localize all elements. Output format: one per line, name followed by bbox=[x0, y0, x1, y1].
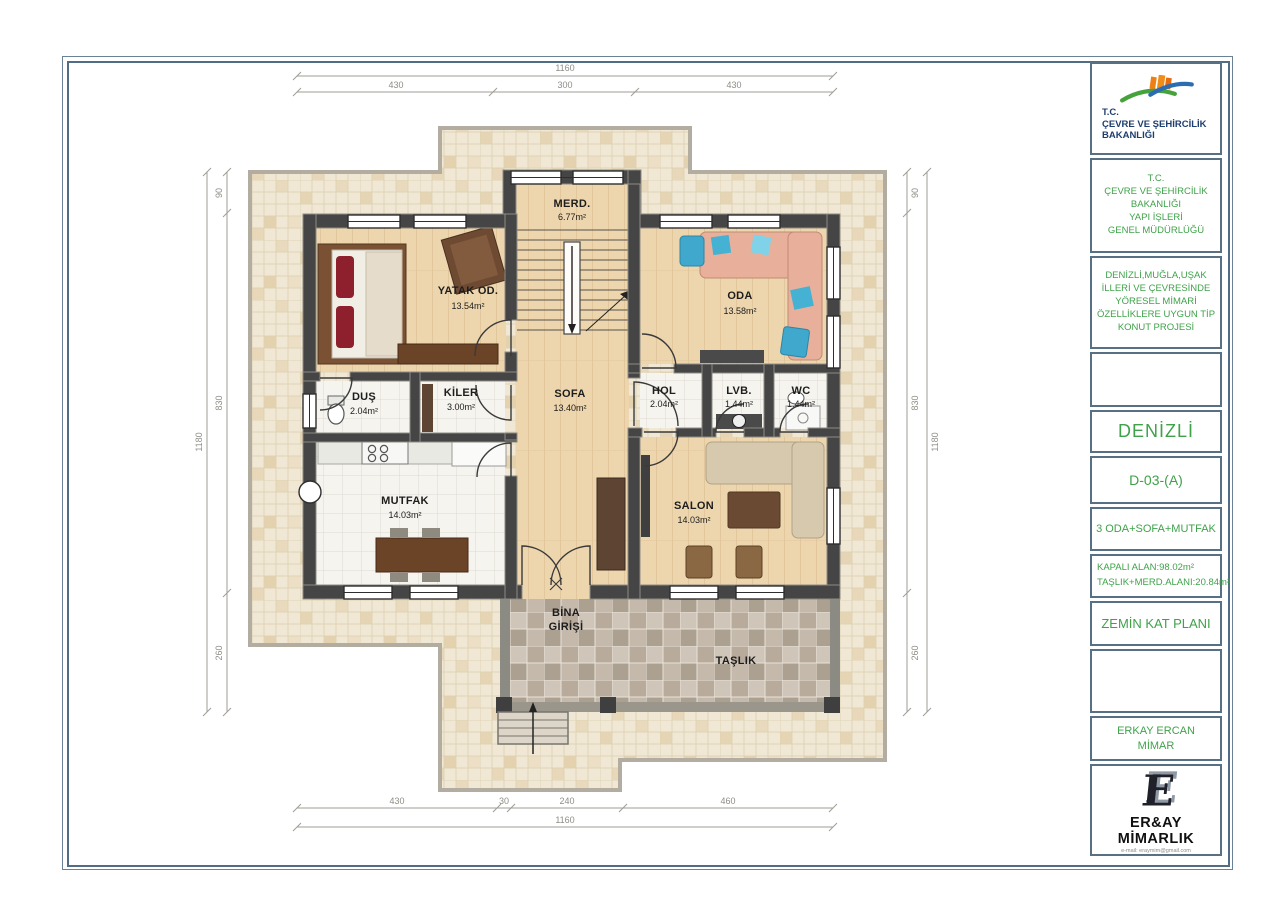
project-line3: YÖRESEL MİMARİ bbox=[1115, 296, 1196, 309]
room-area-oda: 13.58m² bbox=[723, 306, 756, 316]
ministry-line4: YAPI İŞLERİ bbox=[1129, 212, 1183, 225]
room-label-hol: HOL bbox=[652, 385, 676, 397]
title-block-firm: E E ER&AY MİMARLIK e-mail: eraymim@gmail… bbox=[1090, 764, 1222, 856]
room-area-salon: 14.03m² bbox=[677, 515, 710, 525]
room-label-merd: MERD. bbox=[554, 198, 591, 210]
room-label-yatak: YATAK OD. bbox=[438, 285, 499, 297]
title-block-empty-2 bbox=[1090, 649, 1222, 713]
title-block-project: DENİZLİ,MUĞLA,UŞAK İLLERİ VE ÇEVRESİNDE … bbox=[1090, 256, 1222, 349]
room-area-merd: 6.77m² bbox=[558, 212, 586, 222]
title-block-program: 3 ODA+SOFA+MUTFAK bbox=[1090, 507, 1222, 551]
ministry-logo-line2: ÇEVRE VE ŞEHİRCİLİK bbox=[1102, 119, 1220, 130]
firm-name: ER&AY MİMARLIK bbox=[1092, 815, 1220, 847]
sofa-hall-cabinet-icon bbox=[597, 478, 625, 570]
title-block-areas: KAPALI ALAN:98.02m² TAŞLIK+MERD.ALANI:20… bbox=[1090, 554, 1222, 598]
project-line2: İLLERİ VE ÇEVRESİNDE bbox=[1102, 283, 1211, 296]
title-block-ministry: T.C. ÇEVRE VE ŞEHİRCİLİK BAKANLIĞI YAPI … bbox=[1090, 158, 1222, 253]
terrace-floor bbox=[496, 599, 840, 713]
dim-left-seg3: 260 bbox=[214, 645, 224, 660]
dim-top-seg2: 300 bbox=[557, 80, 572, 90]
room-label-salon: SALON bbox=[674, 500, 714, 512]
title-block-city: DENİZLİ bbox=[1090, 410, 1222, 453]
room-label-sofa: SOFA bbox=[554, 388, 585, 400]
area-closed: KAPALI ALAN:98.02m² bbox=[1097, 561, 1194, 576]
architect-name: ERKAY ERCAN bbox=[1117, 724, 1195, 739]
title-block-code: D-03-(A) bbox=[1090, 456, 1222, 504]
project-line1: DENİZLİ,MUĞLA,UŞAK bbox=[1105, 270, 1206, 283]
ministry-logo-line1: T.C. bbox=[1102, 107, 1220, 118]
project-line4: ÖZELLİKLERE UYGUN TİP bbox=[1097, 309, 1215, 322]
title-block-empty-1 bbox=[1090, 352, 1222, 407]
dim-right-seg3: 260 bbox=[910, 645, 920, 660]
dim-right-total: 1180 bbox=[930, 432, 940, 451]
title-block-ministry-logo: T.C. ÇEVRE VE ŞEHİRCİLİK BAKANLIĞI bbox=[1090, 62, 1222, 155]
firm-logo-icon: E E bbox=[1134, 766, 1178, 815]
room-label-taslik: TAŞLIK bbox=[716, 655, 757, 667]
dim-bottom-seg1: 430 bbox=[389, 796, 404, 806]
room-label-dus: DUŞ bbox=[352, 391, 376, 403]
dim-bottom-seg4: 460 bbox=[720, 796, 735, 806]
ministry-logo-line3: BAKANLIĞI bbox=[1102, 130, 1220, 141]
room-area-mutfak: 14.03m² bbox=[388, 510, 421, 520]
dim-right-seg2: 830 bbox=[910, 395, 920, 410]
ministry-line1: T.C. bbox=[1148, 173, 1165, 186]
dim-left-total: 1180 bbox=[194, 432, 204, 451]
title-block-architect: ERKAY ERCAN MİMAR bbox=[1090, 716, 1222, 761]
room-area-kiler: 3.00m² bbox=[447, 402, 475, 412]
room-label-oda: ODA bbox=[727, 290, 752, 302]
room-label-lvb: LVB. bbox=[726, 385, 751, 397]
dim-bottom-total: 1160 bbox=[555, 815, 574, 825]
room-label-bina-girisi-2: GİRİŞİ bbox=[549, 621, 584, 633]
room-area-lvb: 1.44m² bbox=[725, 399, 753, 409]
dim-right-seg1: 90 bbox=[910, 188, 920, 198]
room-label-wc: WC bbox=[792, 385, 811, 397]
svg-text:E: E bbox=[1139, 767, 1177, 815]
dim-top-seg1: 430 bbox=[388, 80, 403, 90]
drawing-sheet: MERD. 6.77m² YATAK OD. 13.54m² ODA 13.58… bbox=[0, 0, 1288, 921]
room-area-dus: 2.04m² bbox=[350, 406, 378, 416]
bedroom-dresser-icon bbox=[398, 344, 498, 364]
room-area-hol: 2.04m² bbox=[650, 399, 678, 409]
ministry-logo-icon bbox=[1116, 75, 1196, 107]
area-terrace: TAŞLIK+MERD.ALANI:20.84m² bbox=[1097, 576, 1230, 591]
firm-email: e-mail: eraymim@gmail.com bbox=[1121, 848, 1191, 854]
dim-bottom-seg3: 240 bbox=[559, 796, 574, 806]
room-label-bina-girisi-1: BİNA bbox=[552, 607, 580, 619]
room-label-mutfak: MUTFAK bbox=[381, 495, 429, 507]
dim-bottom-seg2: 30 bbox=[499, 796, 509, 806]
room-area-yatak: 13.54m² bbox=[451, 301, 484, 311]
title-block-plan-name: ZEMİN KAT PLANI bbox=[1090, 601, 1222, 646]
room-area-sofa: 13.40m² bbox=[553, 403, 586, 413]
architect-title: MİMAR bbox=[1138, 739, 1175, 754]
ministry-line5: GENEL MÜDÜRLÜĞÜ bbox=[1108, 225, 1204, 238]
bed-icon bbox=[318, 244, 406, 364]
room-label-kiler: KİLER bbox=[444, 387, 479, 399]
dim-left-seg1: 90 bbox=[214, 188, 224, 198]
dim-top-seg3: 430 bbox=[726, 80, 741, 90]
dim-top-total: 1160 bbox=[555, 63, 574, 73]
room-area-wc: 1.44m² bbox=[787, 399, 815, 409]
ministry-line2: ÇEVRE VE ŞEHİRCİLİK bbox=[1104, 186, 1207, 199]
ministry-line3: BAKANLIĞI bbox=[1131, 199, 1181, 212]
project-line5: KONUT PROJESİ bbox=[1118, 322, 1194, 335]
dim-left-seg2: 830 bbox=[214, 395, 224, 410]
